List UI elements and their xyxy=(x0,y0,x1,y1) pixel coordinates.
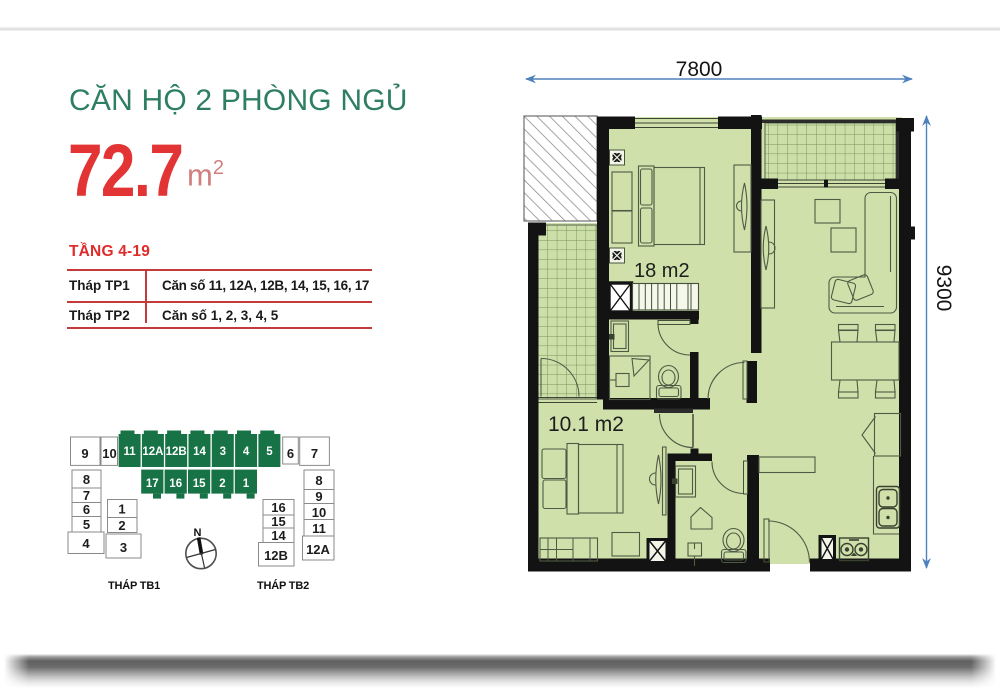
svg-text:16: 16 xyxy=(271,500,285,515)
svg-text:4: 4 xyxy=(243,446,250,458)
svg-text:18 m2: 18 m2 xyxy=(634,260,690,282)
svg-text:11: 11 xyxy=(312,521,326,536)
svg-text:14: 14 xyxy=(193,446,206,458)
svg-text:12A: 12A xyxy=(142,446,163,458)
svg-text:5: 5 xyxy=(266,446,273,458)
svg-text:8: 8 xyxy=(315,473,322,488)
svg-text:6: 6 xyxy=(287,446,294,461)
svg-text:3: 3 xyxy=(120,540,127,555)
svg-text:5: 5 xyxy=(83,517,90,532)
svg-text:7: 7 xyxy=(83,488,90,503)
svg-text:12B: 12B xyxy=(166,446,187,458)
svg-text:1: 1 xyxy=(118,502,125,517)
svg-text:7: 7 xyxy=(311,446,318,461)
svg-text:9300: 9300 xyxy=(932,265,955,312)
svg-text:16: 16 xyxy=(169,478,182,490)
svg-text:10.1 m2: 10.1 m2 xyxy=(548,413,624,436)
svg-text:3: 3 xyxy=(220,446,226,458)
svg-text:10: 10 xyxy=(102,446,116,461)
svg-text:9: 9 xyxy=(315,489,322,504)
svg-text:2: 2 xyxy=(118,518,125,533)
svg-text:9: 9 xyxy=(81,446,88,461)
svg-text:15: 15 xyxy=(271,514,285,529)
svg-text:14: 14 xyxy=(271,528,286,543)
svg-text:2: 2 xyxy=(219,478,225,490)
svg-text:12A: 12A xyxy=(306,542,330,557)
svg-text:8: 8 xyxy=(83,472,90,487)
svg-text:THÁP TB1: THÁP TB1 xyxy=(108,579,160,592)
svg-text:15: 15 xyxy=(193,478,206,490)
svg-text:THÁP TB2: THÁP TB2 xyxy=(257,579,309,592)
svg-text:12B: 12B xyxy=(264,548,288,563)
svg-text:11: 11 xyxy=(124,446,137,458)
svg-text:17: 17 xyxy=(146,478,159,490)
svg-text:6: 6 xyxy=(83,502,90,517)
svg-text:10: 10 xyxy=(312,505,326,520)
svg-text:7800: 7800 xyxy=(676,58,723,81)
svg-text:4: 4 xyxy=(82,536,90,551)
svg-text:1: 1 xyxy=(243,478,250,490)
